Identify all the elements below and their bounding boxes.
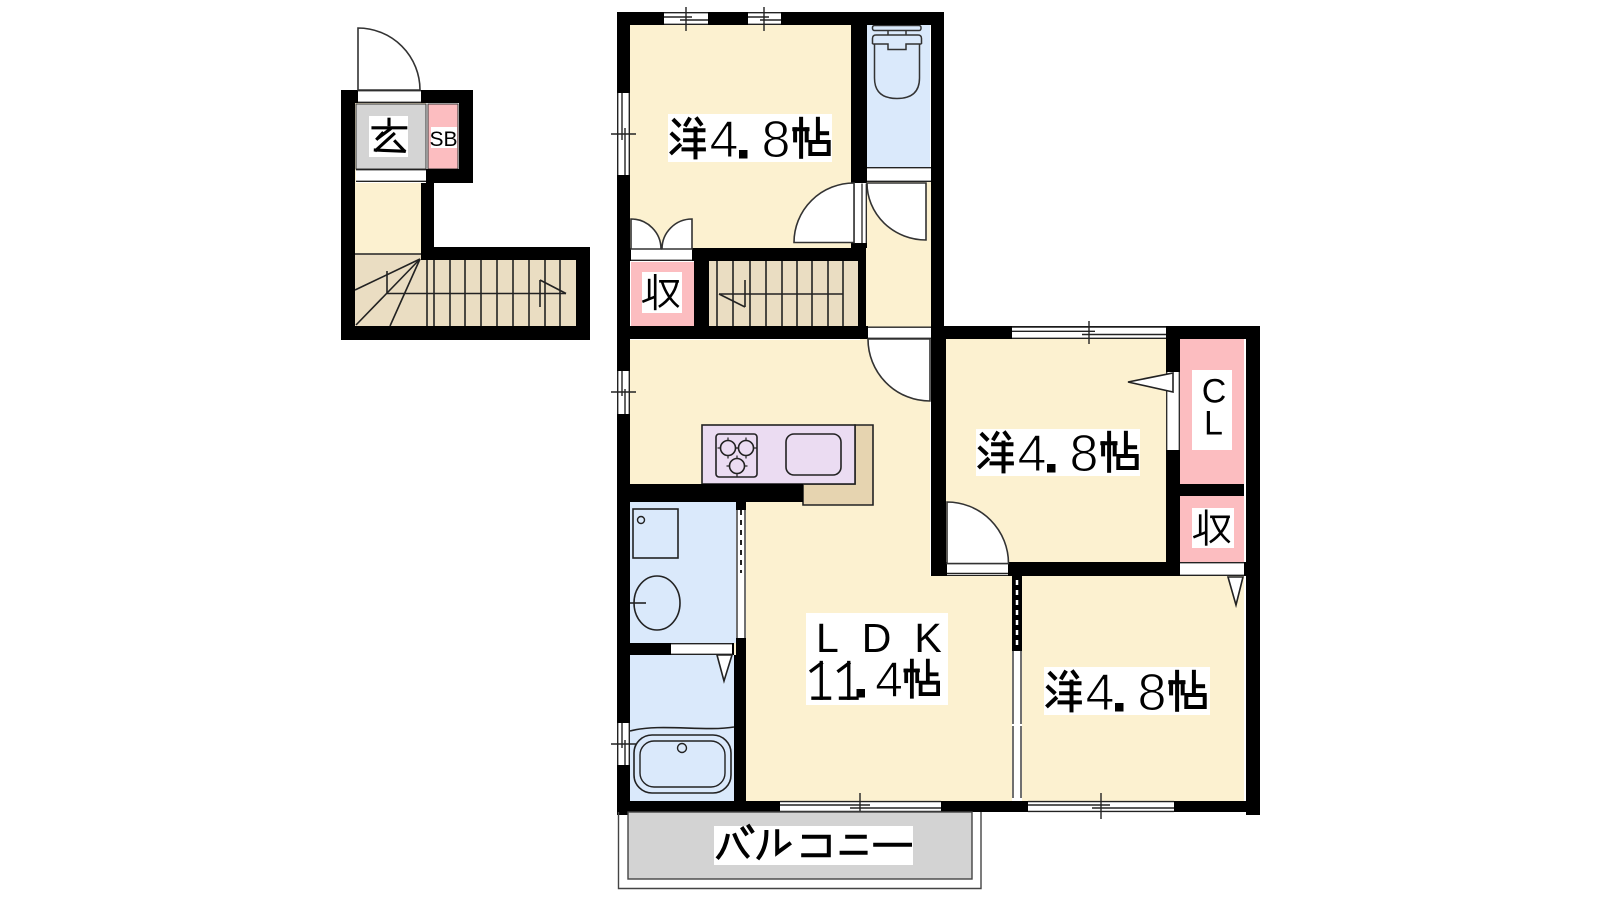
svg-text:8: 8 bbox=[1138, 664, 1167, 722]
svg-text:4: 4 bbox=[1018, 425, 1047, 483]
svg-text:4: 4 bbox=[1086, 664, 1115, 722]
svg-text:SB: SB bbox=[429, 128, 457, 151]
svg-text:4: 4 bbox=[875, 652, 903, 708]
svg-text:4: 4 bbox=[710, 111, 739, 169]
svg-text:L: L bbox=[1204, 405, 1223, 443]
svg-text:8: 8 bbox=[762, 111, 791, 169]
svg-text:8: 8 bbox=[1070, 425, 1099, 483]
